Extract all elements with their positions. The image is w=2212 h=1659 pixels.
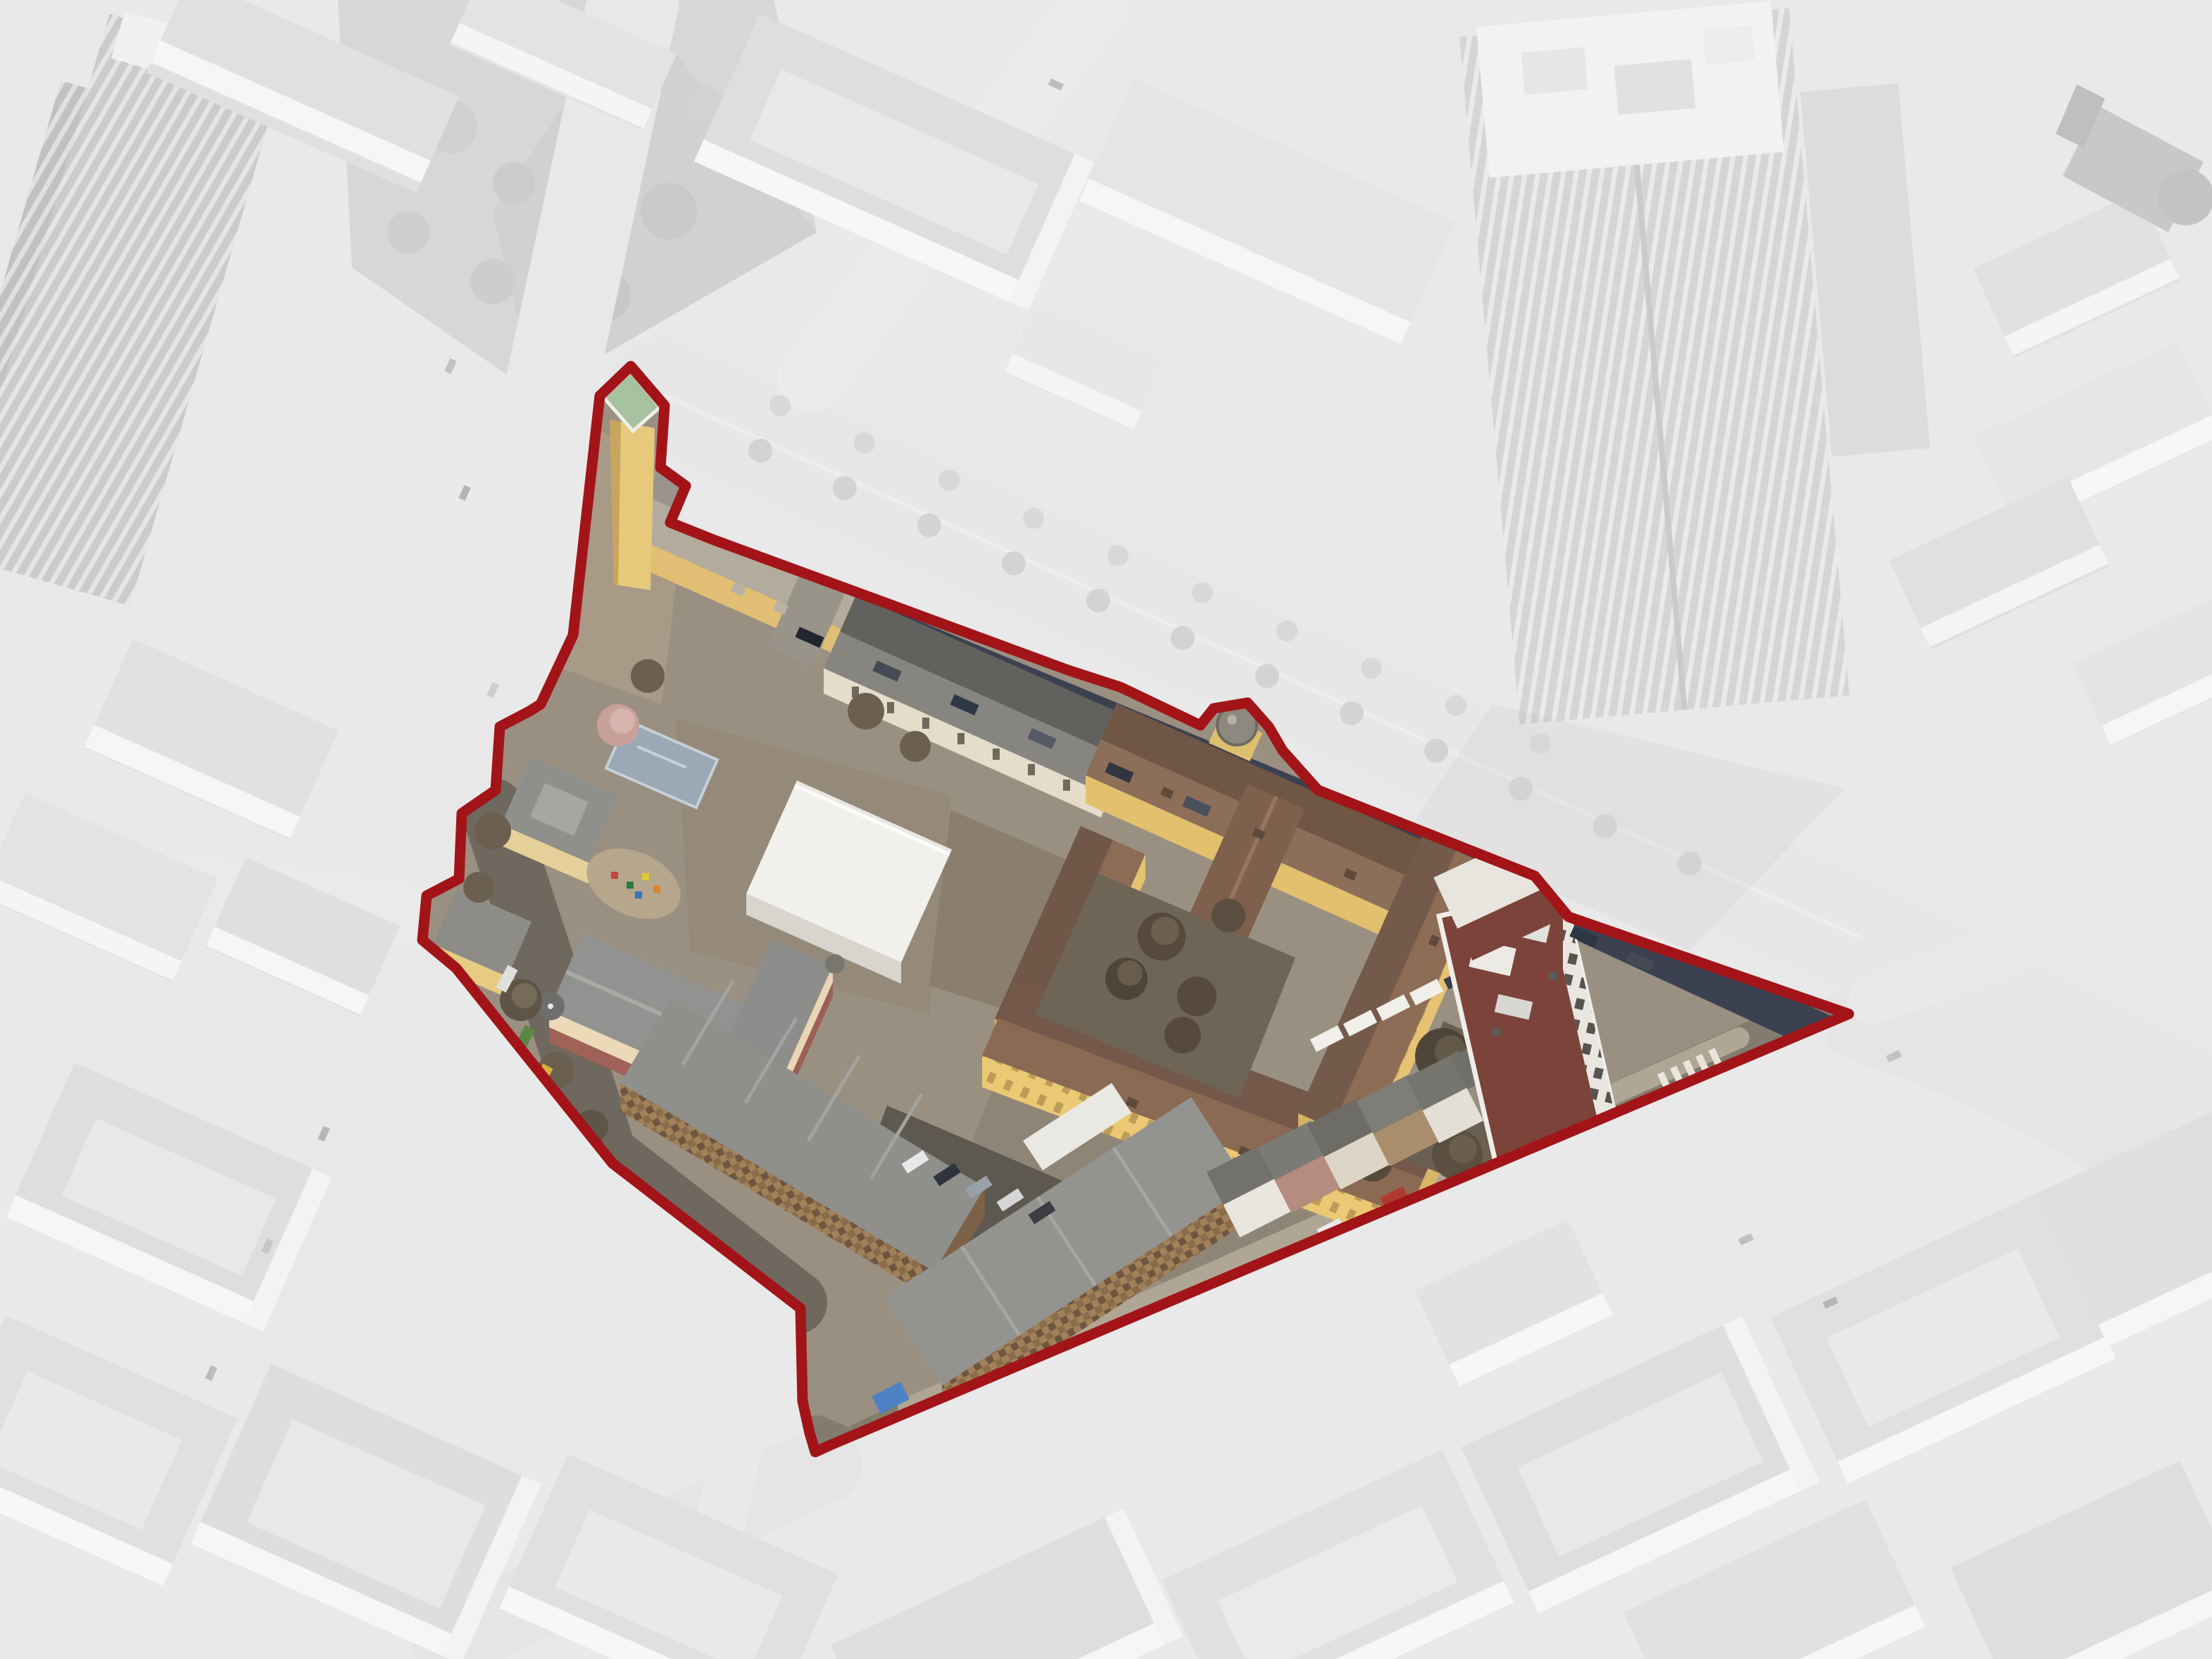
aerial-map-svg	[0, 0, 2212, 1659]
aerial-map	[0, 0, 2212, 1659]
